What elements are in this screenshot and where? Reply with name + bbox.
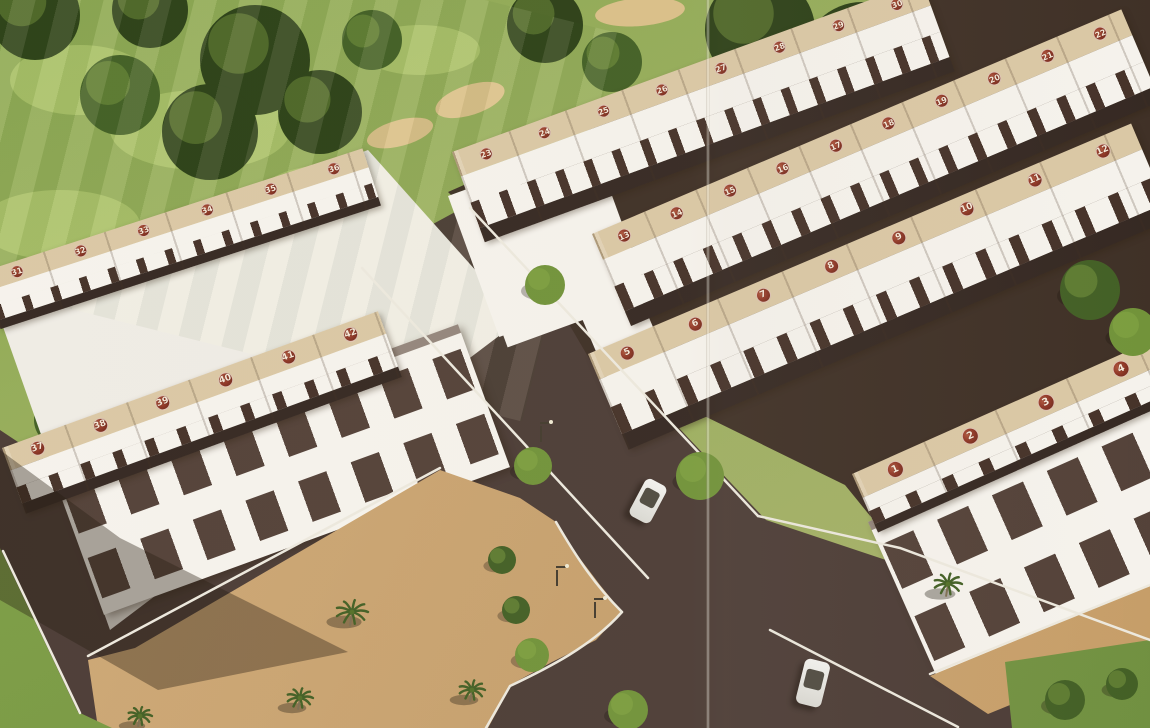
tree-highlight — [1113, 312, 1139, 338]
tree-highlight — [611, 693, 633, 715]
tree-highlight — [504, 598, 519, 613]
aerial-site-photo: 3132333435363738394041422324252627282930… — [0, 0, 1150, 728]
tree-highlight — [518, 641, 537, 660]
tree-highlight — [517, 450, 538, 471]
car-windshield — [803, 668, 825, 690]
lamp-bulb — [565, 564, 569, 568]
curb-lines — [3, 208, 1150, 728]
tree-highlight — [680, 456, 706, 482]
tree-highlight — [1048, 683, 1070, 705]
curb-line — [770, 630, 958, 727]
street-lamp — [556, 568, 570, 586]
lamp-pole — [540, 426, 542, 442]
street-lamp — [540, 424, 554, 442]
foreground-details — [0, 0, 1150, 728]
car-windshield — [638, 487, 661, 510]
brochure-fold-crease — [706, 0, 710, 728]
tree-highlight — [528, 268, 550, 290]
lamp-pole — [556, 570, 558, 586]
street-lamp — [594, 600, 608, 618]
tree-highlight — [490, 548, 505, 563]
tree-highlight — [1108, 670, 1126, 688]
curb-line — [3, 551, 80, 713]
curb-line — [486, 612, 622, 728]
lamp-bulb — [549, 420, 553, 424]
curb-line — [362, 268, 648, 578]
lamp-bulb — [603, 596, 607, 600]
lamp-pole — [594, 602, 596, 618]
curb-line — [88, 468, 440, 656]
tree-highlight — [1065, 265, 1098, 298]
